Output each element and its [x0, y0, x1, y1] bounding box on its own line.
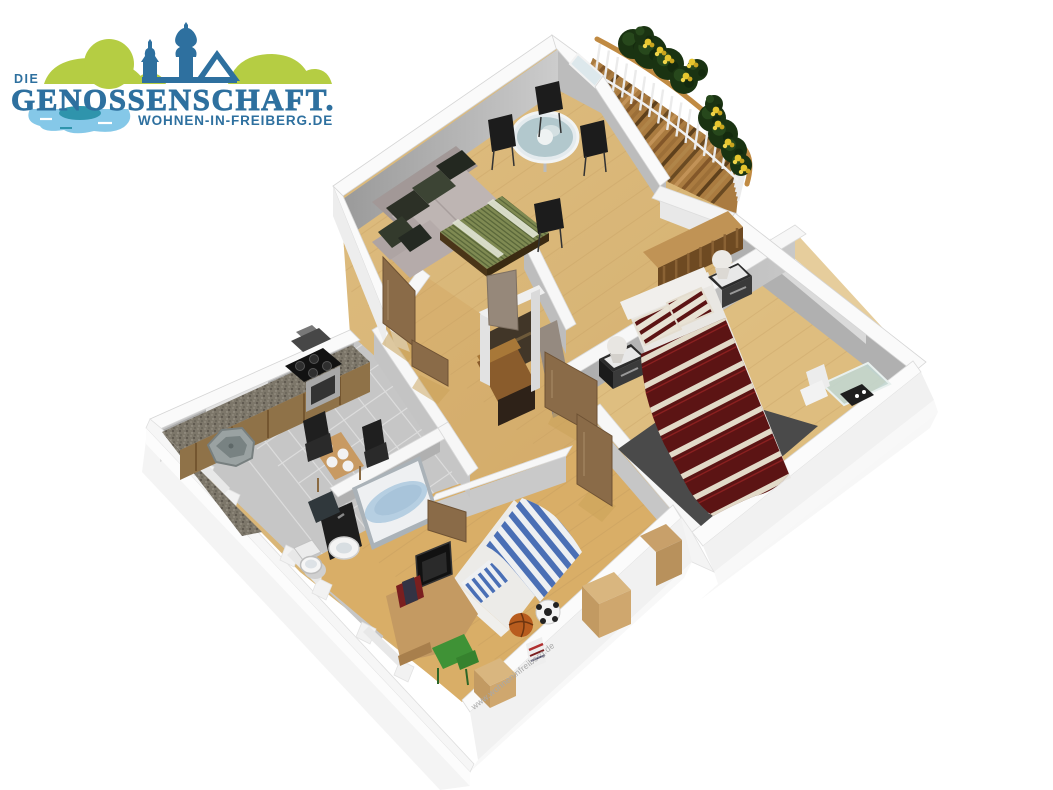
svg-text:GENOSSENSCHAFT.: GENOSSENSCHAFT.	[11, 82, 335, 117]
svg-text:WOHNEN-IN-FREIBERG.DE: WOHNEN-IN-FREIBERG.DE	[138, 113, 333, 128]
